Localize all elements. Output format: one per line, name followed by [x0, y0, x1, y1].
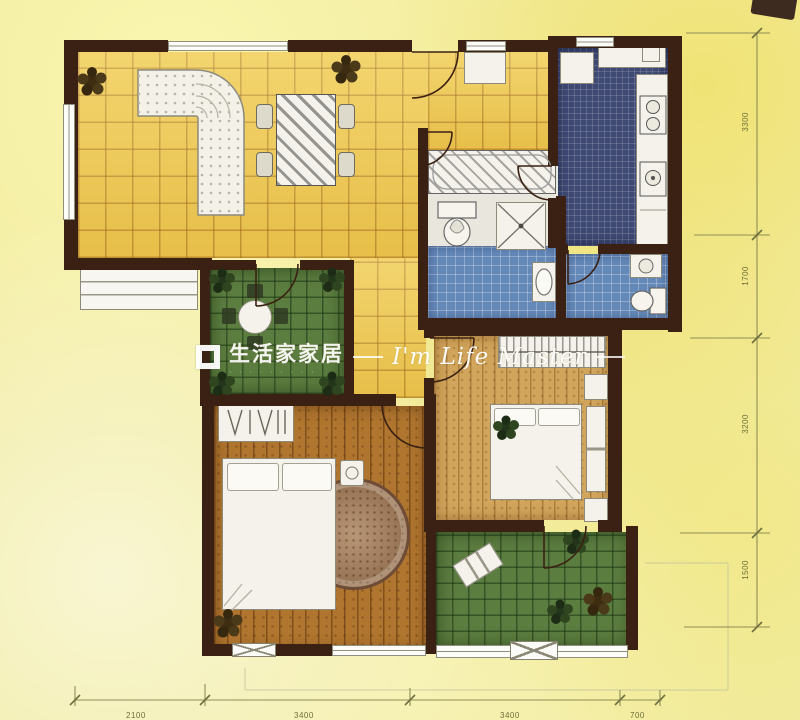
wardrobe-hangers-icon [228, 410, 285, 434]
blanket-fold [556, 466, 580, 500]
watermark-dash [597, 356, 625, 358]
plant-icon [332, 55, 361, 84]
floorplan-canvas: 3300 1700 3200 1500 2100 3400 3400 700 生… [0, 0, 800, 720]
bathroom-door-arc [418, 132, 452, 166]
dimension-label: 3200 [741, 414, 750, 434]
washroom-door-arc [568, 250, 600, 284]
washbasin-icon [536, 269, 552, 295]
shower-icon [498, 204, 544, 248]
plant-icon [584, 587, 613, 616]
dimension-label: 1700 [741, 266, 750, 286]
north-balcony-door-arc [256, 264, 298, 306]
watermark-tagline: · · · · · · · · · [229, 369, 344, 376]
toilet-icon [631, 288, 666, 314]
bathtub-rim [433, 155, 551, 189]
brand-logo-icon [196, 345, 220, 369]
stove-burners-icon [640, 96, 666, 134]
dimension-label: 3400 [500, 711, 520, 720]
plant-icon [214, 609, 243, 638]
watermark-dash [353, 356, 383, 358]
plant-icon [319, 268, 345, 293]
dimension-label: 700 [630, 711, 645, 720]
l-shaped-counter [138, 70, 244, 215]
watermark-brand: 生活家家居 [229, 338, 344, 368]
lamp-icon [346, 467, 358, 479]
dimension-label: 3300 [741, 112, 750, 132]
washing-machine-drum-icon [639, 259, 653, 273]
plant-icon [493, 416, 519, 441]
dimension-label: 2100 [126, 711, 146, 720]
kitchen-door-arc [518, 166, 552, 200]
watermark: 生活家家居 · · · · · · · · · I'm Life Master [196, 337, 625, 377]
dimension-label: 1500 [741, 560, 750, 580]
plant-icon [78, 67, 107, 96]
entry-door-arc [412, 52, 458, 98]
eaves-outline [245, 563, 728, 690]
watermark-script: I'm Life Master [392, 344, 587, 370]
blanket-fold [224, 584, 252, 610]
door-swings [256, 52, 600, 568]
toilet-icon [438, 202, 476, 246]
plant-icon [209, 269, 235, 294]
bedroom-1-door-arc [382, 404, 426, 448]
plant-icon [547, 600, 573, 625]
kitchen-sink-icon [640, 162, 666, 210]
dimension-label: 3400 [294, 711, 314, 720]
